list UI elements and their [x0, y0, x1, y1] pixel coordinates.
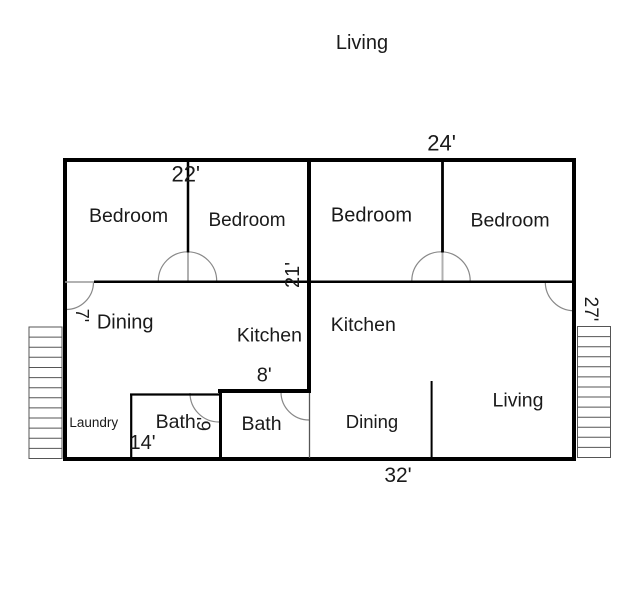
- svg-text:14': 14': [129, 432, 155, 454]
- svg-text:Living: Living: [336, 32, 388, 54]
- svg-text:Bedroom: Bedroom: [208, 210, 285, 231]
- svg-text:32': 32': [384, 464, 411, 487]
- svg-text:8': 8': [257, 365, 272, 387]
- svg-text:Kitchen: Kitchen: [331, 314, 396, 336]
- svg-text:Living: Living: [493, 389, 544, 411]
- svg-text:Kitchen: Kitchen: [237, 325, 302, 347]
- svg-text:6': 6': [195, 417, 216, 431]
- svg-text:7': 7': [72, 309, 92, 322]
- svg-text:Bedroom: Bedroom: [89, 205, 168, 227]
- svg-text:Dining: Dining: [346, 411, 398, 432]
- svg-text:Bath: Bath: [241, 413, 281, 435]
- svg-text:Dining: Dining: [97, 311, 154, 333]
- svg-text:Bath: Bath: [156, 411, 196, 433]
- svg-text:27': 27': [580, 297, 601, 322]
- svg-text:Bedroom: Bedroom: [331, 205, 412, 227]
- svg-text:21': 21': [282, 262, 304, 288]
- svg-text:24': 24': [427, 131, 456, 156]
- svg-text:22': 22': [171, 161, 200, 186]
- svg-text:Bedroom: Bedroom: [470, 210, 549, 232]
- svg-text:Laundry: Laundry: [69, 415, 118, 430]
